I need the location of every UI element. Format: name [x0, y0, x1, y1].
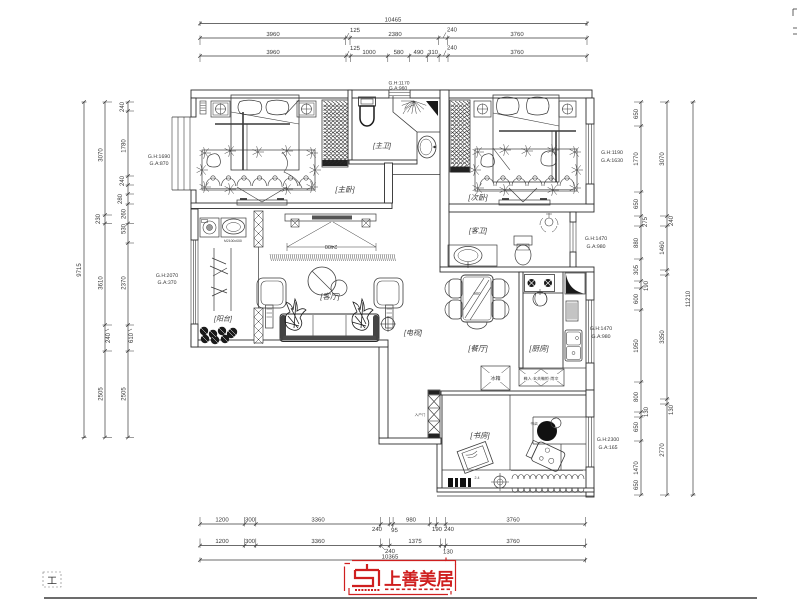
svg-text:3610: 3610	[99, 276, 105, 290]
svg-text:900: 900	[473, 291, 481, 296]
svg-text:3360: 3360	[311, 517, 325, 523]
svg-text:1460: 1460	[660, 241, 666, 255]
svg-text:3960: 3960	[266, 32, 280, 38]
svg-text:10365: 10365	[382, 554, 399, 560]
svg-text:G.A:980: G.A:980	[586, 244, 605, 250]
svg-text:230: 230	[96, 213, 102, 224]
svg-text:3070: 3070	[99, 148, 105, 162]
svg-text:11210: 11210	[686, 290, 692, 307]
svg-text:300: 300	[245, 517, 256, 523]
svg-text:130: 130	[644, 406, 650, 417]
svg-text:G.A:870: G.A:870	[149, 161, 168, 167]
svg-text:3760: 3760	[506, 539, 520, 545]
svg-text:1950: 1950	[634, 339, 640, 353]
svg-text:650: 650	[634, 421, 640, 432]
svg-text:125: 125	[350, 46, 361, 52]
svg-text:3360: 3360	[311, 539, 325, 545]
svg-text:1000: 1000	[362, 50, 376, 56]
svg-text:2370: 2370	[122, 276, 128, 290]
svg-text:[主卫]: [主卫]	[372, 142, 392, 150]
svg-text:130: 130	[669, 404, 675, 415]
svg-text:[客卫]: [客卫]	[468, 227, 488, 235]
svg-text:[餐厅]: [餐厅]	[467, 344, 488, 353]
svg-text:240: 240	[447, 27, 458, 33]
svg-text:2380: 2380	[388, 32, 402, 38]
svg-text:1375: 1375	[408, 539, 422, 545]
svg-text:240: 240	[120, 175, 126, 186]
svg-text:3960: 3960	[266, 50, 280, 56]
svg-text:G.H:1470: G.H:1470	[590, 326, 612, 332]
svg-text:3760: 3760	[506, 517, 520, 523]
svg-text:800: 800	[634, 391, 640, 402]
svg-text:G.A:980: G.A:980	[591, 334, 610, 340]
svg-text:980: 980	[406, 517, 417, 523]
svg-text:280: 280	[118, 193, 124, 204]
svg-text:上善美居: 上善美居	[384, 569, 454, 589]
svg-text:3760: 3760	[510, 50, 524, 56]
svg-text:95: 95	[391, 528, 398, 534]
svg-text:G.H:1690: G.H:1690	[148, 154, 170, 160]
svg-text:[客厅]: [客厅]	[319, 292, 340, 301]
svg-text:[书房]: [书房]	[469, 431, 490, 440]
svg-text:9715: 9715	[77, 263, 83, 277]
svg-text:G.A:370: G.A:370	[157, 280, 176, 286]
svg-text:[主卧]: [主卧]	[334, 185, 355, 194]
svg-text:工: 工	[47, 576, 57, 587]
svg-text:1780: 1780	[122, 139, 128, 153]
svg-text:530: 530	[122, 223, 128, 234]
svg-text:2400: 2400	[325, 243, 337, 249]
svg-text:580: 580	[394, 50, 405, 56]
svg-text:190: 190	[432, 527, 443, 533]
svg-text:G.H:1470: G.H:1470	[585, 236, 607, 242]
svg-text:G.A:960: G.A:960	[389, 86, 408, 92]
svg-text:2505: 2505	[99, 387, 105, 401]
svg-text:275: 275	[643, 216, 649, 227]
svg-text:300: 300	[245, 539, 256, 545]
svg-text:1200: 1200	[215, 539, 229, 545]
svg-text:260: 260	[122, 208, 128, 219]
svg-text:[厨房]: [厨房]	[528, 344, 549, 353]
svg-text:880: 880	[634, 237, 640, 248]
svg-text:[阳台]: [阳台]	[213, 315, 233, 323]
svg-text:3350: 3350	[660, 330, 666, 344]
svg-text:书桌: 书桌	[530, 421, 538, 426]
svg-text:G.A:165: G.A:165	[598, 445, 617, 451]
svg-text:310: 310	[428, 50, 439, 56]
svg-text:240: 240	[444, 527, 455, 533]
svg-text:650: 650	[634, 479, 640, 490]
svg-text:240: 240	[120, 101, 126, 112]
svg-text:3070: 3070	[660, 152, 666, 166]
svg-text:鞋入·玄关鞋柜·雨伞: 鞋入·玄关鞋柜·雨伞	[524, 375, 559, 381]
svg-text:650: 650	[634, 108, 640, 119]
svg-text:1770: 1770	[634, 152, 640, 166]
svg-text:190: 190	[644, 280, 650, 291]
svg-text:650: 650	[634, 198, 640, 209]
svg-text:冰箱: 冰箱	[490, 375, 500, 382]
svg-text:2505: 2505	[122, 387, 128, 401]
svg-text:3760: 3760	[510, 32, 524, 38]
svg-text:[电视]: [电视]	[403, 329, 423, 337]
svg-text:10465: 10465	[385, 17, 402, 23]
svg-text:240: 240	[372, 527, 383, 533]
svg-text:G.H:2070: G.H:2070	[156, 273, 178, 279]
svg-text:2770: 2770	[660, 443, 666, 457]
svg-text:610: 610	[129, 332, 135, 343]
svg-text:G.H:1190: G.H:1190	[601, 150, 623, 156]
svg-text:125: 125	[350, 28, 361, 34]
svg-text:240: 240	[447, 45, 458, 51]
svg-text:[次卧]: [次卧]	[467, 193, 488, 202]
svg-text:G.A:1630: G.A:1630	[601, 158, 623, 164]
svg-text:240: 240	[106, 332, 112, 343]
svg-text:G.H:2300: G.H:2300	[597, 437, 619, 443]
svg-text:2.4: 2.4	[474, 476, 479, 480]
svg-text:1200: 1200	[215, 517, 229, 523]
svg-text:240: 240	[669, 215, 675, 226]
svg-text:490: 490	[413, 50, 424, 56]
svg-text:130: 130	[443, 549, 454, 555]
svg-text:600: 600	[634, 293, 640, 304]
svg-text:305: 305	[634, 264, 640, 275]
svg-text:M2100x600: M2100x600	[224, 239, 242, 243]
svg-text:1470: 1470	[634, 461, 640, 475]
svg-text:入户门: 入户门	[415, 412, 426, 417]
